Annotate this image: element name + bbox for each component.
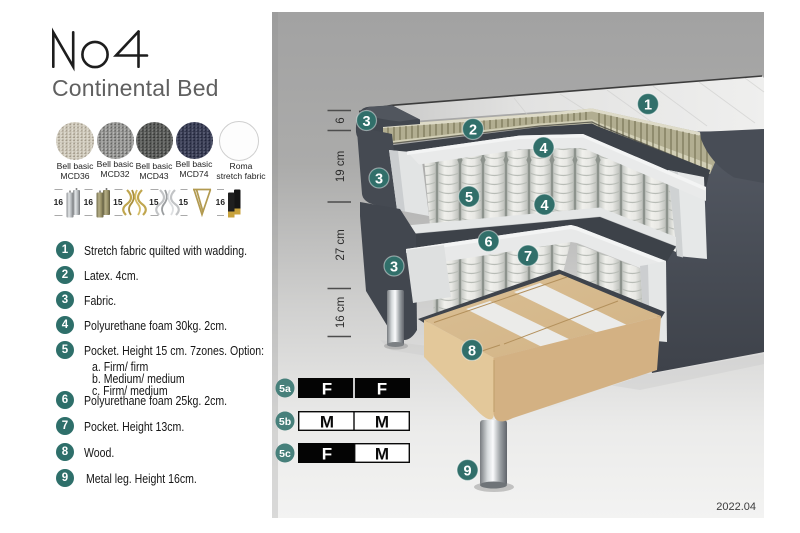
- svg-text:M: M: [375, 445, 389, 464]
- svg-text:5b: 5b: [279, 416, 291, 428]
- svg-text:4: 4: [539, 141, 547, 157]
- svg-text:27 cm: 27 cm: [335, 229, 347, 260]
- svg-text:7: 7: [524, 249, 532, 265]
- svg-text:M: M: [320, 413, 334, 432]
- svg-text:5a: 5a: [279, 383, 291, 395]
- svg-text:F: F: [322, 445, 332, 464]
- svg-text:16 cm: 16 cm: [335, 297, 347, 328]
- svg-text:5: 5: [465, 190, 473, 206]
- svg-text:F: F: [377, 380, 387, 399]
- svg-text:3: 3: [390, 260, 398, 276]
- svg-text:19 cm: 19 cm: [335, 151, 347, 182]
- svg-text:6: 6: [484, 235, 492, 251]
- svg-text:6: 6: [335, 117, 347, 123]
- svg-text:1: 1: [644, 98, 652, 114]
- svg-text:F: F: [322, 380, 332, 399]
- svg-text:2: 2: [469, 123, 477, 139]
- svg-text:5c: 5c: [279, 448, 291, 460]
- svg-text:9: 9: [463, 464, 471, 480]
- svg-text:3: 3: [375, 172, 383, 188]
- svg-text:M: M: [375, 413, 389, 432]
- svg-text:4: 4: [540, 198, 548, 214]
- svg-text:8: 8: [468, 344, 476, 360]
- svg-text:3: 3: [362, 114, 370, 130]
- svg-text:2022.04: 2022.04: [716, 501, 756, 513]
